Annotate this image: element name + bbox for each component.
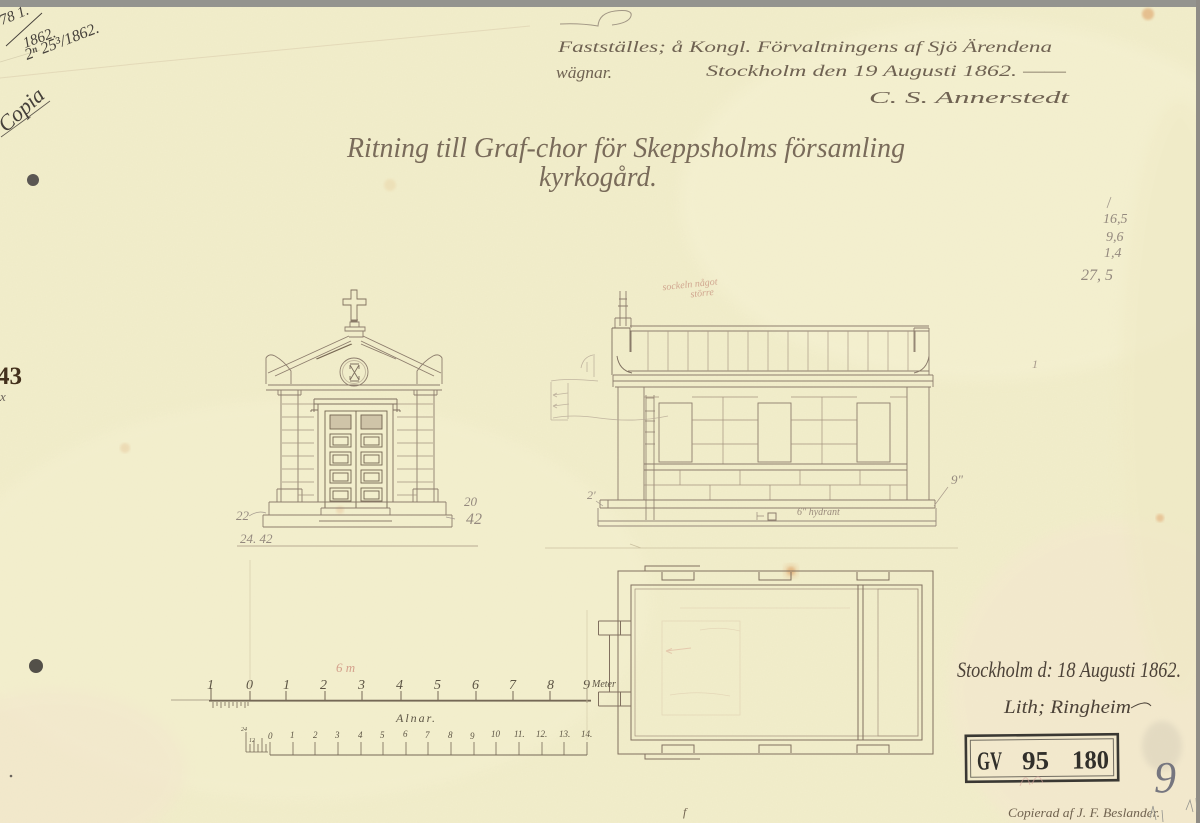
svg-text:24. 42: 24. 42 [240,531,273,546]
svg-text:1: 1 [283,678,290,693]
svg-text:42: 42 [466,511,482,528]
svg-text:6 m: 6 m [336,660,355,675]
svg-text:Meter: Meter [591,679,616,690]
svg-text:1,4: 1,4 [1104,246,1122,261]
svg-text:Stockholm d: 18 Augusti 1862.: Stockholm d: 18 Augusti 1862. [957,657,1181,682]
svg-text:20: 20 [464,494,478,509]
svg-text:95: 95 [1022,746,1049,775]
svg-text:9: 9 [1154,753,1176,802]
svg-text:4: 4 [358,730,363,740]
svg-text:5: 5 [434,678,441,693]
svg-text:2': 2' [587,488,596,502]
svg-text:Alnar.: Alnar. [395,711,437,725]
svg-text:C. S. Annerstedt: C. S. Annerstedt [869,88,1071,107]
svg-text:7: 7 [425,730,430,740]
svg-text:wägnar.: wägnar. [556,63,612,82]
svg-text:12.: 12. [536,729,547,739]
svg-text:5: 5 [380,730,385,740]
svg-text:8: 8 [448,730,453,740]
svg-text:1: 1 [1032,357,1038,371]
svg-text:0: 0 [268,731,273,741]
svg-text:1: 1 [207,678,214,693]
svg-text:6: 6 [472,678,479,693]
svg-text:3: 3 [334,730,340,740]
svg-text:9: 9 [470,731,475,741]
svg-text:2: 2 [320,678,327,693]
svg-text:9": 9" [951,472,964,487]
svg-text:9,6: 9,6 [1106,230,1124,245]
svg-text:7: 7 [509,678,517,693]
svg-text:Ritning till Graf-chor för: Ritning till Graf-chor för Skeppsholms f… [346,133,905,164]
svg-text:11.: 11. [514,729,525,739]
svg-text:0: 0 [246,678,253,693]
svg-text:10: 10 [491,729,501,739]
svg-text:6" hydrant: 6" hydrant [797,507,840,518]
svg-text:180: 180 [1072,745,1109,774]
svg-text:22: 22 [236,508,250,523]
svg-text:Copierad af J. F. Beslander.: Copierad af J. F. Beslander. [1008,805,1160,820]
svg-text:2: 2 [313,730,318,740]
svg-text:12: 12 [249,738,255,744]
svg-text:3: 3 [357,678,365,693]
svg-text:9: 9 [583,678,590,693]
svg-text:6: 6 [403,729,408,739]
svg-text:13.: 13. [559,729,570,739]
svg-text:8: 8 [547,678,554,693]
svg-text:x: x [0,389,6,404]
svg-text:Fastställes; å Kongl. Förval: Fastställes; å Kongl. Förvaltningens af … [557,38,1052,56]
svg-text:27, 5: 27, 5 [1081,267,1113,284]
svg-text:43: 43 [0,363,22,390]
svg-text:Stockholm den 19 Augusti 186: Stockholm den 19 Augusti 1862. —— [706,63,1067,80]
svg-text:24: 24 [241,726,247,733]
svg-text:1: 1 [290,730,295,740]
svg-text:Lith; Ringheim: Lith; Ringheim [1003,697,1131,718]
svg-text:4: 4 [396,678,403,693]
svg-text:kyrkogård.: kyrkogård. [539,162,657,193]
svg-text:GV: GV [977,746,1002,775]
svg-text:16,5: 16,5 [1103,212,1128,227]
